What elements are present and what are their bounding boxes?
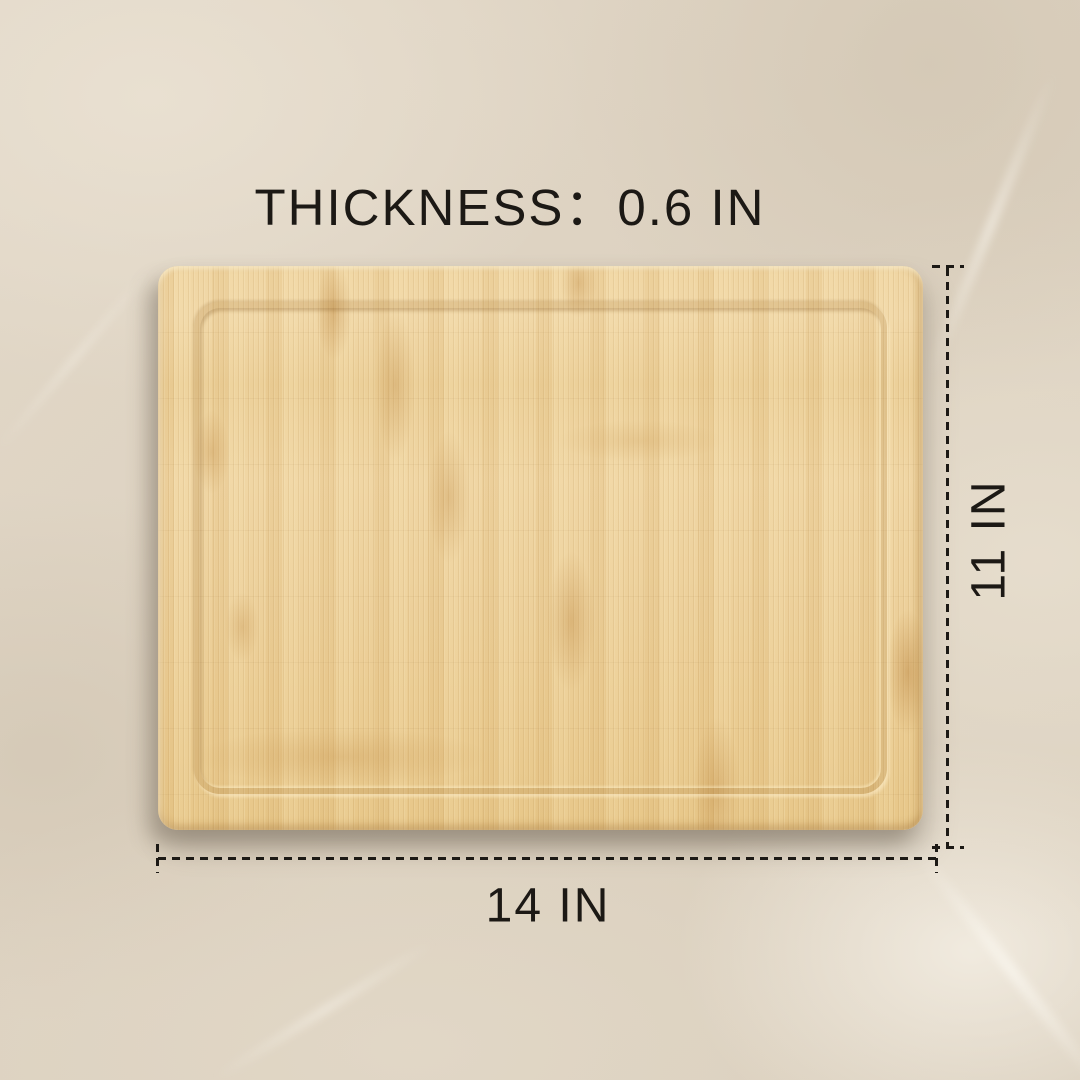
width-label: 14 IN bbox=[486, 879, 611, 934]
bamboo-cutting-board bbox=[158, 266, 923, 830]
juice-groove bbox=[194, 302, 887, 794]
product-dimension-image: THICKNESS：0.6 IN 11 IN 14 IN bbox=[0, 0, 1080, 1080]
marble-vein bbox=[0, 266, 153, 454]
height-label: 11 IN bbox=[962, 479, 1017, 600]
thickness-label: THICKNESS：0.6 IN bbox=[255, 166, 766, 240]
marble-vein bbox=[925, 70, 1058, 380]
marble-vein bbox=[914, 848, 1080, 1080]
marble-vein bbox=[212, 937, 437, 1080]
